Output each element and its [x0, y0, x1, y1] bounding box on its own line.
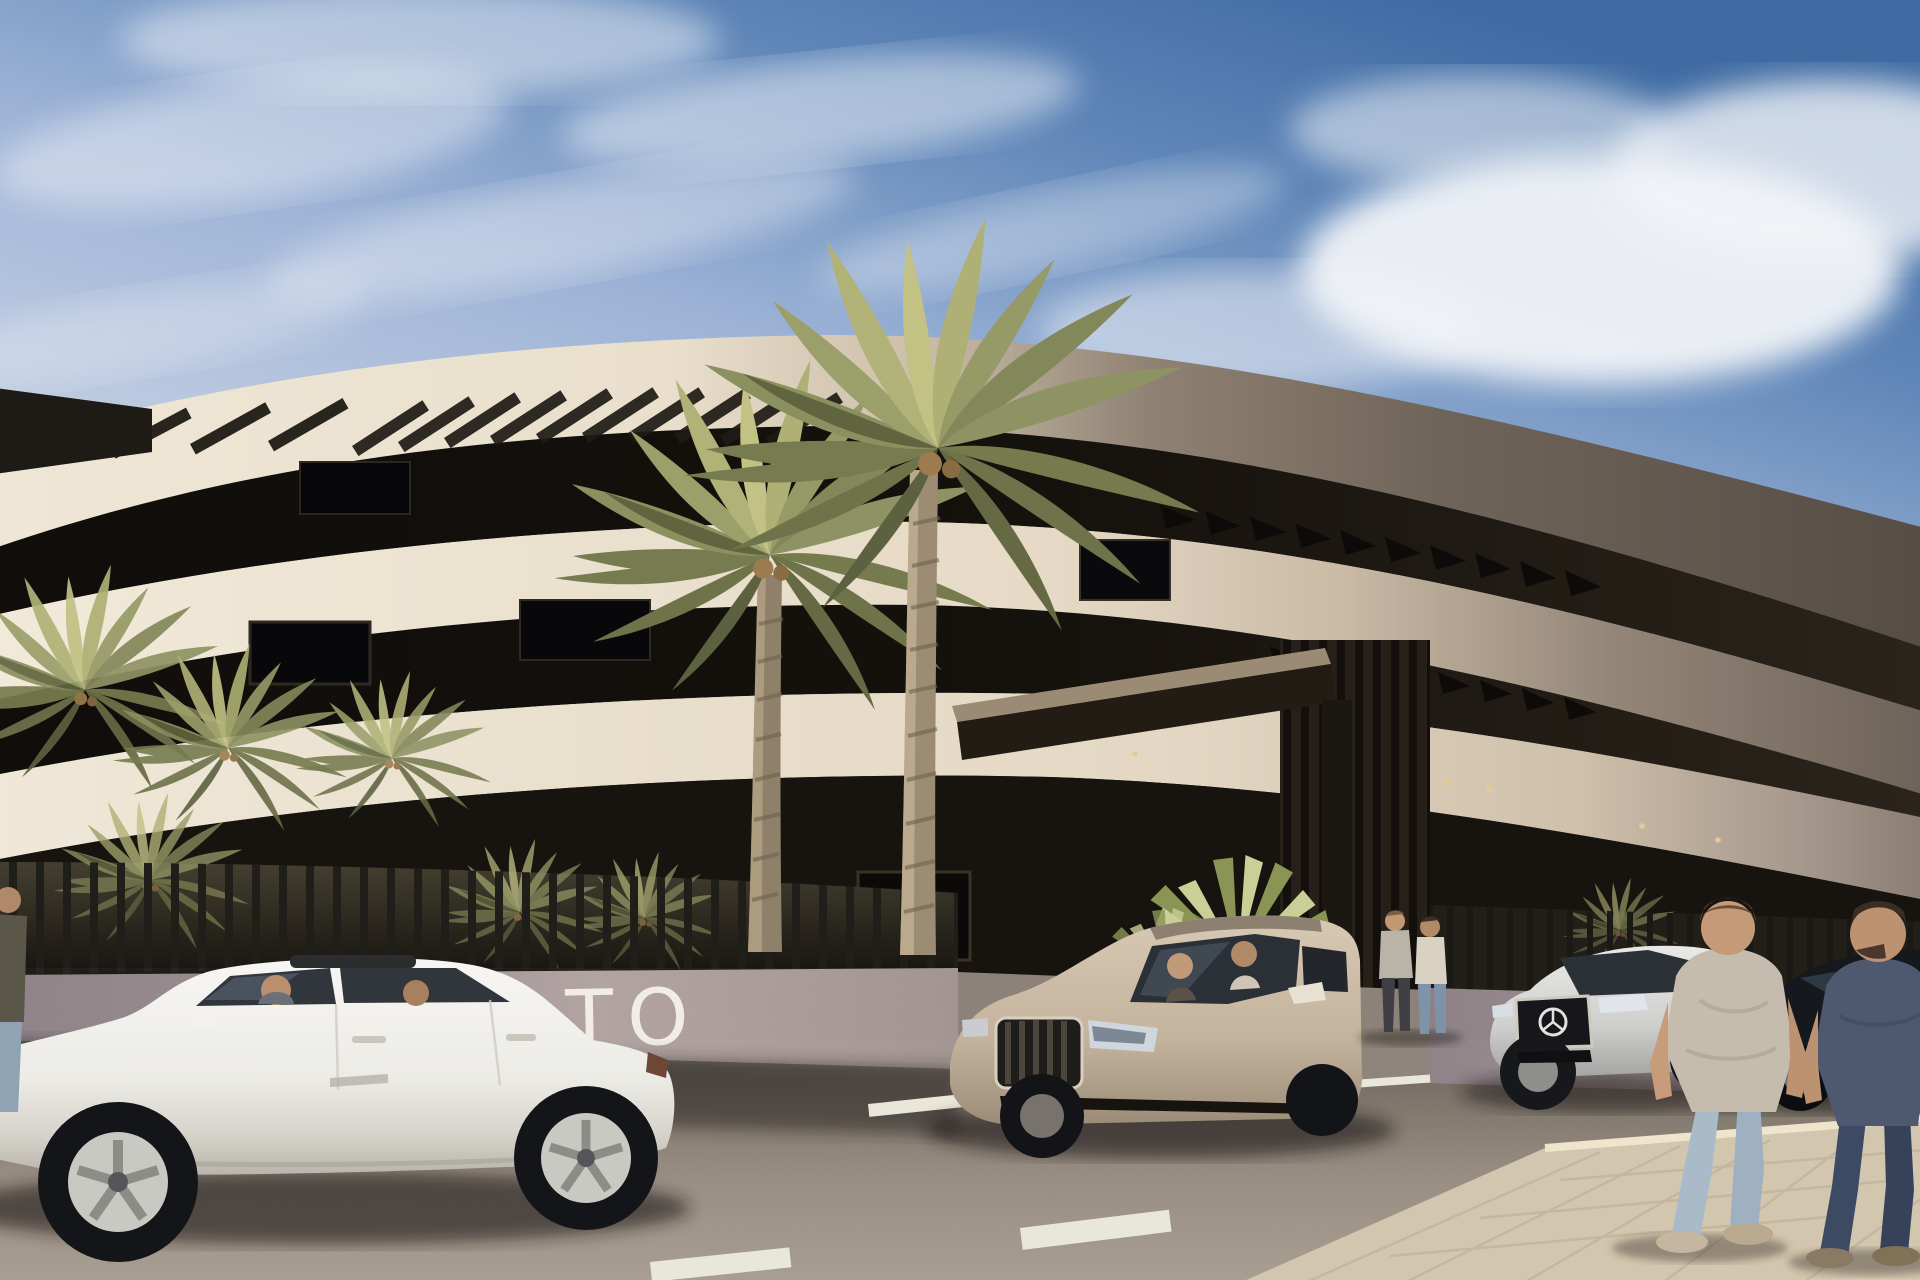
balcony-window [250, 622, 370, 684]
front-wheel [38, 1102, 198, 1262]
scene-render: TO [0, 0, 1920, 1280]
rear-wheel [514, 1086, 658, 1230]
render-stage: TO [0, 0, 1920, 1280]
sunroof [290, 955, 416, 968]
balcony-window [300, 462, 410, 514]
